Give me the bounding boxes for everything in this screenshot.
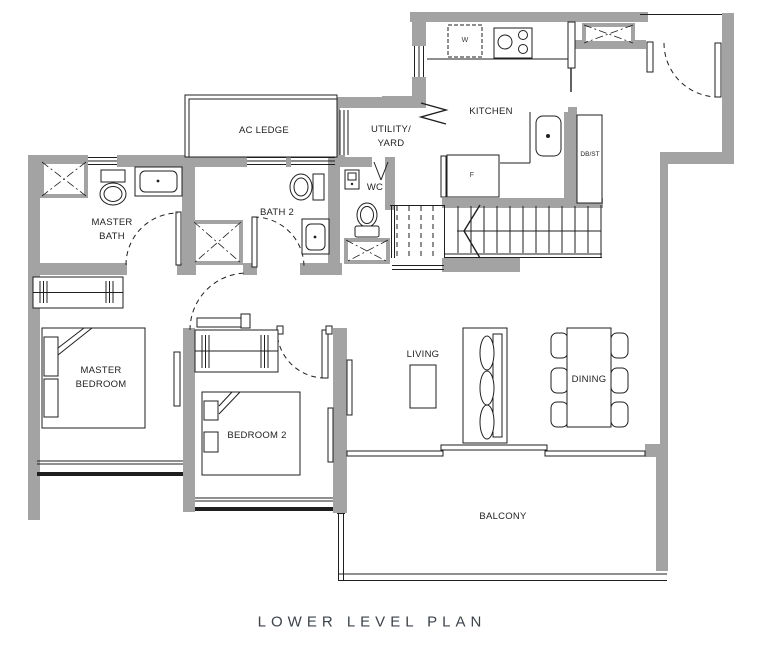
label-utility-yard: UTILITY/ YARD	[371, 123, 411, 152]
label-db-st: DB/ST	[580, 150, 599, 160]
walls	[28, 12, 734, 571]
floor-plan-drawing	[0, 0, 764, 664]
label-bath-2: BATH 2	[260, 206, 294, 220]
label-master-bath: MASTER BATH	[91, 216, 132, 245]
label-dining: DINING	[572, 373, 607, 387]
label-fridge: F	[470, 171, 475, 182]
label-wc: WC	[367, 181, 383, 195]
label-living: LIVING	[407, 348, 440, 362]
label-balcony: BALCONY	[479, 510, 526, 524]
label-kitchen: KITCHEN	[469, 105, 512, 119]
label-bedroom-2: BEDROOM 2	[227, 429, 286, 443]
label-master-bedroom: MASTER BEDROOM	[76, 364, 127, 393]
label-washer: W	[462, 36, 469, 47]
bedroom-furniture	[33, 277, 300, 475]
label-ac-ledge: AC LEDGE	[239, 124, 289, 138]
plan-title: LOWER LEVEL PLAN	[258, 614, 487, 631]
floor-plan: AC LEDGE UTILITY/ YARD KITCHEN WC MASTER…	[0, 0, 764, 664]
